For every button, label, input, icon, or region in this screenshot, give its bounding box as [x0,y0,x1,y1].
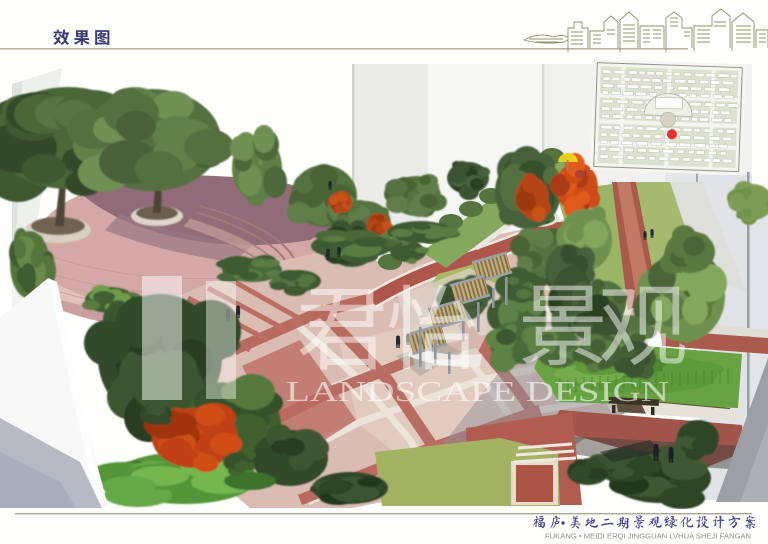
svg-text:FUKANG • MEIDI ERQI JINGGUAN L: FUKANG • MEIDI ERQI JINGGUAN LVHUA SHEJI… [545,532,751,541]
svg-text:LANDSCAPE DESIGN: LANDSCAPE DESIGN [286,376,669,408]
